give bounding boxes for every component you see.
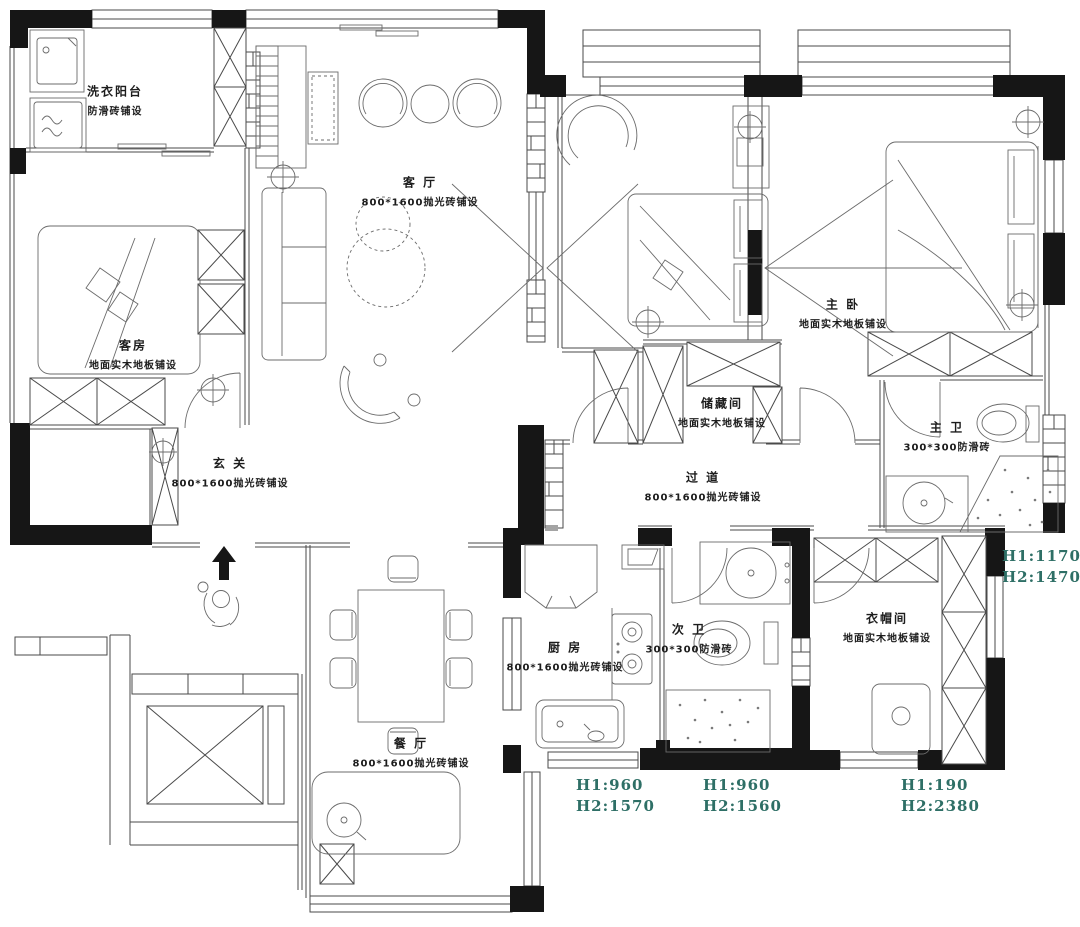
room-label-kitchen: 厨 房 800*1600抛光砖铺设 [507, 641, 624, 674]
bay-window-master [798, 30, 1010, 95]
fridge [525, 545, 597, 608]
dimension-label-kitchen: H1:960 H2:1570 [576, 775, 655, 817]
room-label-dining: 餐 厅 800*1600抛光砖铺设 [353, 737, 470, 770]
room-label-master: 主 卧 地面实木地板铺设 [799, 298, 887, 331]
floor-plan: 洗衣阳台 防滑砖铺设 客 厅 800*1600抛光砖铺设 客房 地面实木地板铺设… [0, 0, 1080, 927]
dining-chair [330, 658, 356, 688]
laundry-sliding-door [118, 144, 210, 156]
coffee-table [347, 197, 425, 307]
dining-chair [446, 658, 472, 688]
room-label-master-bath: 主 卫 300*300防滑砖 [904, 421, 991, 454]
dining-chair [330, 610, 356, 640]
guest-pillows [198, 230, 244, 334]
armchair-right [453, 79, 501, 127]
dining-table [330, 556, 472, 754]
kitchen-sink [536, 700, 624, 748]
second-shower [666, 690, 770, 752]
master-bed [886, 142, 1038, 332]
person-figure-icon [198, 582, 239, 626]
guest-cabinet [30, 378, 165, 425]
laundry-column [214, 28, 246, 146]
bedroom2-desk [733, 106, 769, 188]
room-label-storage: 储藏间 地面实木地板铺设 [678, 397, 766, 430]
dining-chair [388, 556, 418, 582]
storage-cabinet-left [643, 346, 683, 443]
room-label-second-bath: 次 卫 300*300防滑砖 [646, 623, 733, 656]
bedroom2-chair [557, 95, 637, 165]
second-basin [700, 542, 790, 604]
room-label-living: 客 厅 800*1600抛光砖铺设 [362, 176, 479, 209]
master-basin [886, 476, 968, 532]
side-table [411, 85, 449, 123]
dimension-label-cloak: H1:190 H2:2380 [901, 775, 980, 817]
cloak-cabinet-top [814, 538, 938, 582]
laundry-sink [30, 30, 84, 92]
hall-closet [594, 350, 638, 443]
room-label-hall: 过 道 800*1600抛光砖铺设 [645, 471, 762, 504]
sofa [262, 188, 326, 360]
vent-box [622, 545, 664, 569]
dimension-label-bath: H1:960 H2:1560 [703, 775, 782, 817]
elevator-shaft [147, 706, 263, 804]
rug [308, 72, 338, 144]
dimension-label-right: H1:1170 H2:1470 [1002, 546, 1080, 588]
cloak-cabinet-right [942, 536, 986, 764]
second-bath-door [672, 548, 727, 603]
master-door [800, 388, 855, 443]
south-balcony [312, 772, 460, 854]
balcony-cabinet [320, 844, 354, 884]
dresser [872, 684, 930, 754]
master-wardrobe [868, 332, 1032, 376]
room-label-laundry: 洗衣阳台 防滑砖铺设 [87, 85, 143, 118]
guest-door [185, 373, 240, 428]
bedroom2-bed [628, 194, 768, 326]
armchair-left [359, 79, 407, 127]
room-label-cloakroom: 衣帽间 地面实木地板铺设 [843, 612, 931, 645]
piano [256, 46, 306, 168]
entry-direction-arrow-icon [212, 546, 236, 580]
washing-machine [30, 98, 86, 152]
dining-chair [446, 610, 472, 640]
lounge-chair [340, 354, 420, 423]
bay-window-bedroom2 [583, 30, 760, 95]
room-label-entry: 玄 关 800*1600抛光砖铺设 [172, 457, 289, 490]
room-label-guest: 客房 地面实木地板铺设 [89, 339, 177, 372]
storage-cabinet-top [687, 342, 780, 386]
